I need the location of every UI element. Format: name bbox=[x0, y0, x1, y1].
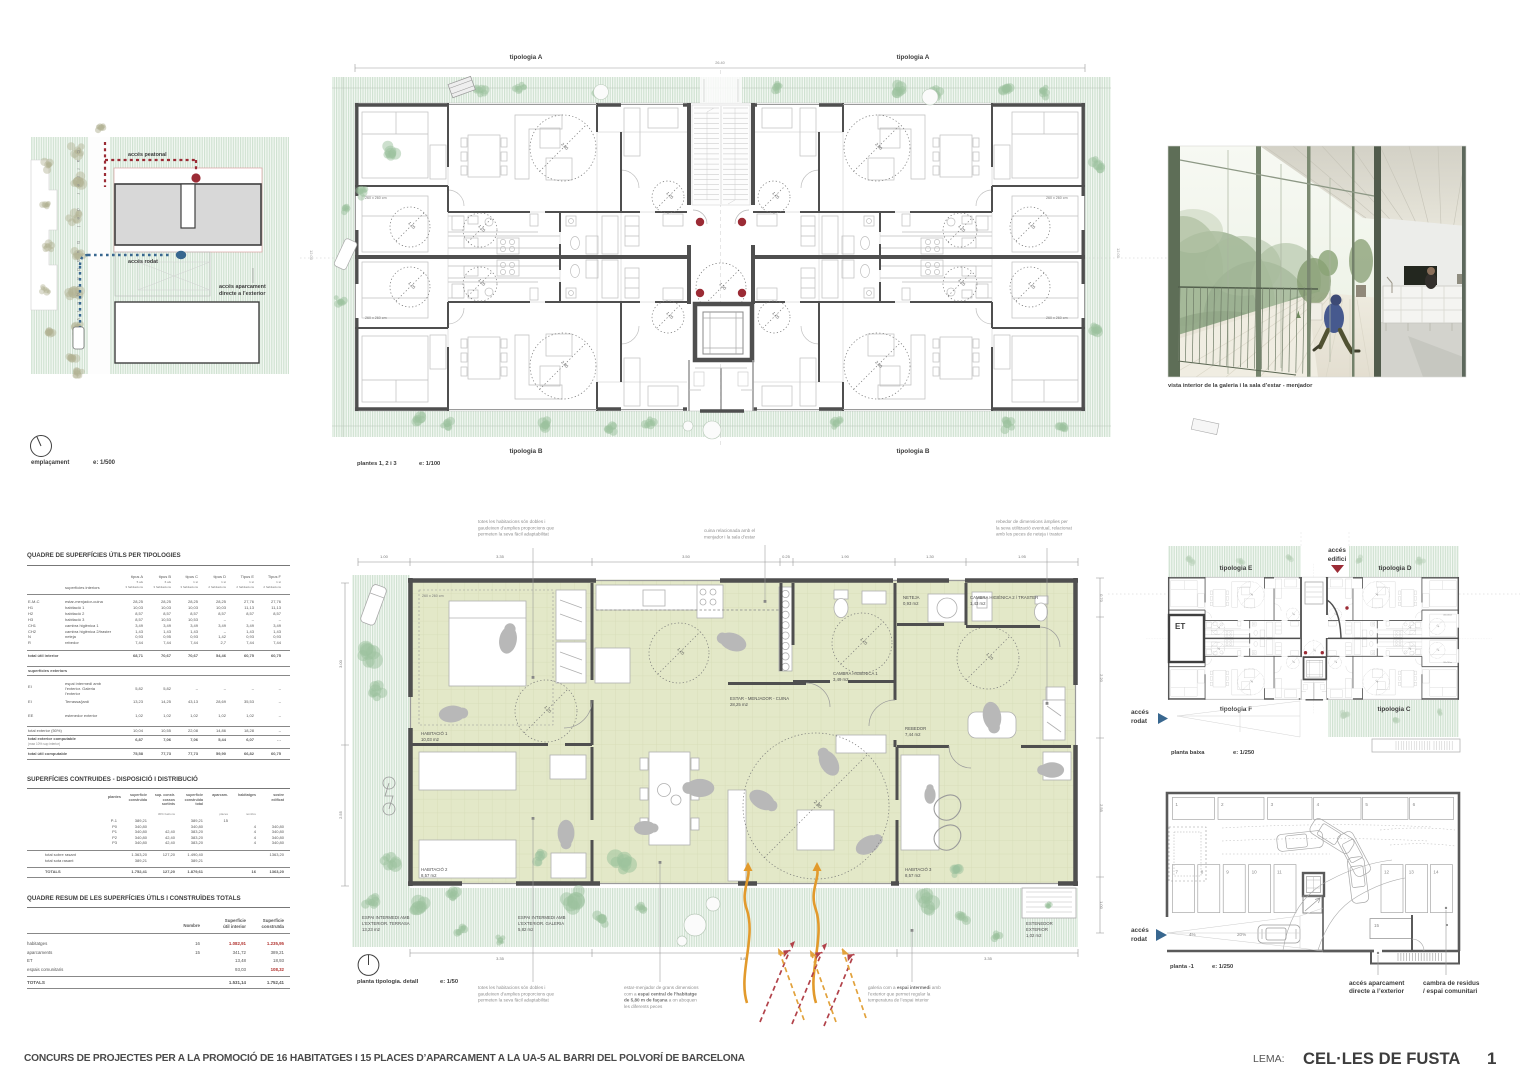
svg-text:1.00: 1.00 bbox=[380, 554, 389, 559]
svg-text:galeria com a espai intermedi: galeria com a espai intermedi amb bbox=[868, 985, 941, 990]
svg-text:4%: 4% bbox=[1189, 932, 1196, 937]
svg-text:edifici: edifici bbox=[1328, 556, 1347, 563]
svg-text:7,44 m2: 7,44 m2 bbox=[905, 732, 921, 737]
svg-text:LEMA:: LEMA: bbox=[1253, 1053, 1285, 1065]
svg-text:totes les habitacions són dobl: totes les habitacions són dobles i bbox=[478, 519, 545, 524]
svg-text:gaudeixen d’amplies proporcion: gaudeixen d’amplies proporcions que bbox=[478, 525, 555, 530]
svg-text:amb les peces de neteja i tras: amb les peces de neteja i traster bbox=[996, 532, 1063, 537]
svg-text:1,02 m2: 1,02 m2 bbox=[1026, 933, 1042, 938]
svg-text:20%: 20% bbox=[1237, 932, 1246, 937]
svg-text:3: 3 bbox=[1271, 802, 1274, 807]
svg-text:accés: accés bbox=[1328, 547, 1346, 554]
svg-text:6: 6 bbox=[1413, 802, 1416, 807]
svg-text:NETEJA: NETEJA bbox=[903, 595, 920, 600]
svg-text:12: 12 bbox=[1384, 870, 1390, 875]
svg-text:260 x 260 cm: 260 x 260 cm bbox=[422, 594, 444, 598]
svg-text:com a espai central de l’habit: com a espai central de l’habitatge bbox=[624, 991, 697, 996]
svg-text:estar-menjador de grans dimens: estar-menjador de grans dimensions bbox=[624, 985, 699, 990]
svg-text:tipologia B: tipologia B bbox=[896, 448, 929, 455]
svg-text:L’EXTERIOR. TERRASA: L’EXTERIOR. TERRASA bbox=[362, 921, 410, 926]
svg-text:accés aparcament: accés aparcament bbox=[1349, 980, 1405, 987]
svg-text:13: 13 bbox=[1409, 870, 1415, 875]
svg-text:26.40: 26.40 bbox=[715, 61, 725, 65]
svg-text:3.35: 3.35 bbox=[496, 554, 505, 559]
svg-text:rodat: rodat bbox=[1131, 936, 1148, 943]
svg-text:tipologia A: tipologia A bbox=[510, 54, 543, 61]
svg-text:13,23 m2: 13,23 m2 bbox=[362, 927, 381, 932]
svg-text:12.00: 12.00 bbox=[1116, 248, 1121, 259]
svg-text:0.25: 0.25 bbox=[782, 554, 791, 559]
svg-text:planta -1: planta -1 bbox=[1170, 964, 1195, 970]
svg-text:260 x 260 cm: 260 x 260 cm bbox=[365, 196, 387, 200]
svg-text:la seva utilització eventual,: la seva utilització eventual, relacionat bbox=[996, 525, 1073, 530]
svg-text:7: 7 bbox=[1175, 870, 1178, 875]
svg-text:15: 15 bbox=[1374, 923, 1380, 928]
svg-text:2.55: 2.55 bbox=[338, 810, 343, 819]
svg-text:CAMBRA HIGIÈNICA 1: CAMBRA HIGIÈNICA 1 bbox=[833, 671, 878, 676]
svg-text:l’exterior que permet regular: l’exterior que permet regular la bbox=[868, 991, 931, 996]
svg-text:1: 1 bbox=[1175, 802, 1178, 807]
svg-text:L’EXTERIOR. GALERIA: L’EXTERIOR. GALERIA bbox=[518, 921, 564, 926]
svg-text:EXTERIOR: EXTERIOR bbox=[1026, 927, 1048, 932]
svg-text:/ espai comunitari: / espai comunitari bbox=[1423, 988, 1478, 995]
svg-text:4: 4 bbox=[1317, 802, 1320, 807]
svg-text:8,57 m2: 8,57 m2 bbox=[421, 873, 437, 878]
svg-text:CEL·LES DE FUSTA: CEL·LES DE FUSTA bbox=[1303, 1049, 1460, 1068]
svg-text:emplaçament: emplaçament bbox=[31, 460, 69, 466]
svg-text:totes les habitacions són dobl: totes les habitacions són dobles i bbox=[478, 985, 545, 990]
svg-text:accés peatonal: accés peatonal bbox=[128, 152, 167, 158]
svg-text:tipologia E: tipologia E bbox=[1220, 565, 1253, 572]
svg-text:260 x 260 cm: 260 x 260 cm bbox=[365, 316, 387, 320]
svg-text:HABITACIÓ 2: HABITACIÓ 2 bbox=[421, 867, 448, 872]
svg-text:CAMBRA HIGIÈNICA 2 / TRASTER: CAMBRA HIGIÈNICA 2 / TRASTER bbox=[970, 595, 1038, 600]
svg-text:cuina relacionada amb el: cuina relacionada amb el bbox=[704, 528, 755, 533]
svg-text:permeten la seva fàcil adaptab: permeten la seva fàcil adaptabilitat bbox=[478, 998, 549, 1003]
svg-text:0,93 m2: 0,93 m2 bbox=[903, 601, 919, 606]
svg-text:accés: accés bbox=[1131, 927, 1149, 934]
svg-text:tipologia F: tipologia F bbox=[1220, 706, 1252, 713]
svg-text:ESTAR - MENJADOR - CUINA: ESTAR - MENJADOR - CUINA bbox=[730, 696, 789, 701]
svg-text:1: 1 bbox=[1487, 1049, 1496, 1068]
svg-text:1.90: 1.90 bbox=[841, 554, 850, 559]
svg-text:5,82 m2: 5,82 m2 bbox=[518, 927, 534, 932]
svg-text:permeten la seva fàcil adaptab: permeten la seva fàcil adaptabilitat bbox=[478, 532, 549, 537]
svg-text:e: 1/250: e: 1/250 bbox=[1233, 750, 1254, 756]
svg-text:directe a l’exterior: directe a l’exterior bbox=[1349, 988, 1405, 995]
svg-text:28,25 m2: 28,25 m2 bbox=[730, 702, 749, 707]
svg-text:les diferents peces: les diferents peces bbox=[624, 1004, 663, 1009]
svg-text:tipologia C: tipologia C bbox=[1377, 706, 1410, 713]
svg-text:HABITACIÓ 3: HABITACIÓ 3 bbox=[905, 867, 932, 872]
svg-text:12.00: 12.00 bbox=[309, 250, 314, 261]
svg-text:rebedor de dimensions àmplies: rebedor de dimensions àmplies per bbox=[996, 519, 1068, 524]
svg-text:5: 5 bbox=[1365, 802, 1368, 807]
svg-text:REBEDOR: REBEDOR bbox=[905, 726, 926, 731]
svg-text:directe a l’exterior: directe a l’exterior bbox=[219, 291, 266, 297]
svg-text:ET: ET bbox=[1175, 622, 1185, 631]
svg-text:1.00: 1.00 bbox=[1099, 901, 1104, 910]
svg-text:10,03 m2: 10,03 m2 bbox=[421, 737, 440, 742]
svg-text:10: 10 bbox=[1252, 870, 1258, 875]
svg-text:e: 1/500: e: 1/500 bbox=[93, 460, 116, 466]
svg-text:cambra de residus: cambra de residus bbox=[1423, 980, 1480, 987]
svg-text:accés aparcament: accés aparcament bbox=[219, 284, 266, 290]
svg-text:plantes 1, 2 i 3: plantes 1, 2 i 3 bbox=[357, 461, 397, 467]
svg-text:e: 1/50: e: 1/50 bbox=[440, 979, 458, 985]
svg-text:accés: accés bbox=[1131, 709, 1149, 716]
svg-text:3.50: 3.50 bbox=[682, 554, 691, 559]
svg-text:planta tipologia. detall: planta tipologia. detall bbox=[357, 979, 419, 985]
svg-text:vista interior de la galeria i: vista interior de la galeria i la sala d… bbox=[1168, 383, 1313, 389]
svg-text:3.00: 3.00 bbox=[338, 659, 343, 668]
svg-text:3.35: 3.35 bbox=[984, 956, 993, 961]
svg-text:2.55: 2.55 bbox=[1099, 804, 1104, 813]
svg-text:9: 9 bbox=[1226, 870, 1229, 875]
svg-text:rodat: rodat bbox=[1131, 718, 1148, 725]
svg-text:e: 1/250: e: 1/250 bbox=[1212, 964, 1233, 970]
svg-text:tipologia B: tipologia B bbox=[509, 448, 542, 455]
svg-text:14: 14 bbox=[1433, 870, 1439, 875]
svg-text:CONCURS DE PROJECTES PER A LA: CONCURS DE PROJECTES PER A LA PROMOCIÓ D… bbox=[24, 1051, 746, 1064]
svg-text:2.20: 2.20 bbox=[1099, 674, 1104, 683]
svg-text:1.95: 1.95 bbox=[1018, 554, 1027, 559]
svg-text:8,57 m2: 8,57 m2 bbox=[905, 873, 921, 878]
svg-text:HABITACIÓ 1: HABITACIÓ 1 bbox=[421, 731, 448, 736]
svg-text:temperatura de l’espai interio: temperatura de l’espai interior bbox=[868, 998, 929, 1003]
svg-text:1.30: 1.30 bbox=[926, 554, 935, 559]
svg-text:260 x 260 cm: 260 x 260 cm bbox=[1046, 196, 1068, 200]
svg-text:tipologia D: tipologia D bbox=[1378, 565, 1411, 572]
svg-text:e: 1/100: e: 1/100 bbox=[419, 461, 440, 467]
svg-text:tipologia A: tipologia A bbox=[897, 54, 930, 61]
svg-text:ESPAI INTERMEDI AMB: ESPAI INTERMEDI AMB bbox=[518, 915, 566, 920]
svg-text:3.35: 3.35 bbox=[496, 956, 505, 961]
svg-text:1,43 m2: 1,43 m2 bbox=[970, 601, 986, 606]
svg-text:gaudeixen d’amplies proporcion: gaudeixen d’amplies proporcions que bbox=[478, 991, 555, 996]
svg-text:0.70: 0.70 bbox=[1099, 594, 1104, 603]
svg-text:ESTENEDOR: ESTENEDOR bbox=[1026, 921, 1053, 926]
svg-text:260 x 260 cm: 260 x 260 cm bbox=[1046, 316, 1068, 320]
svg-text:de 5,80 m de façana a on aboqu: de 5,80 m de façana a on aboquen bbox=[624, 998, 697, 1003]
svg-text:accés rodat: accés rodat bbox=[128, 259, 158, 265]
svg-text:ESPAI INTERMEDI AMB: ESPAI INTERMEDI AMB bbox=[362, 915, 410, 920]
svg-text:3,49 m2: 3,49 m2 bbox=[833, 677, 849, 682]
svg-text:menjador i la sala d’estar: menjador i la sala d’estar bbox=[704, 534, 756, 539]
svg-text:11: 11 bbox=[1277, 870, 1282, 875]
svg-text:planta baixa: planta baixa bbox=[1171, 750, 1205, 756]
svg-text:2: 2 bbox=[1221, 802, 1224, 807]
